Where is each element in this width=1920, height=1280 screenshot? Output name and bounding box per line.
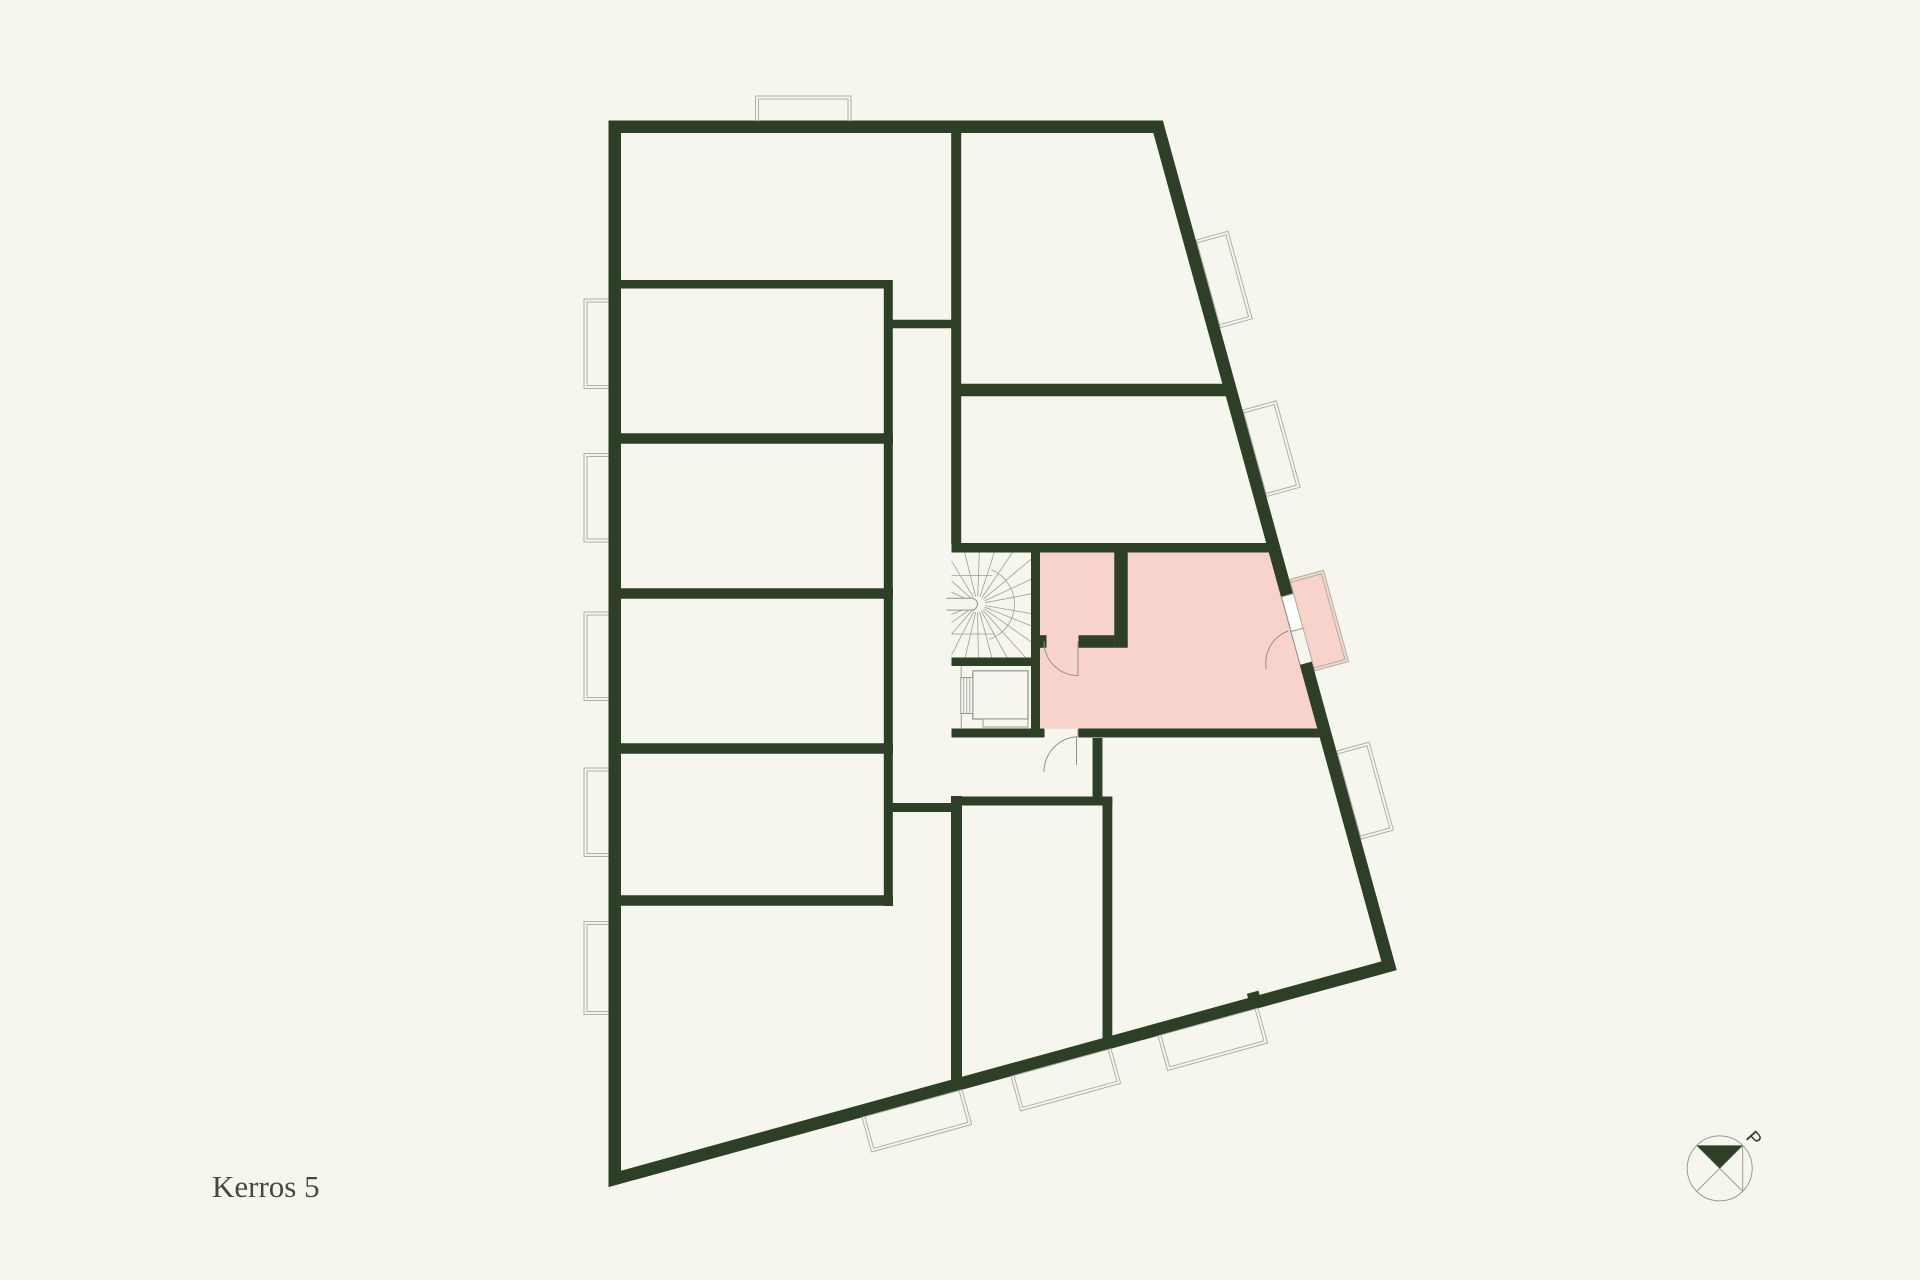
svg-text:Kerros 5: Kerros 5 — [212, 1169, 320, 1204]
